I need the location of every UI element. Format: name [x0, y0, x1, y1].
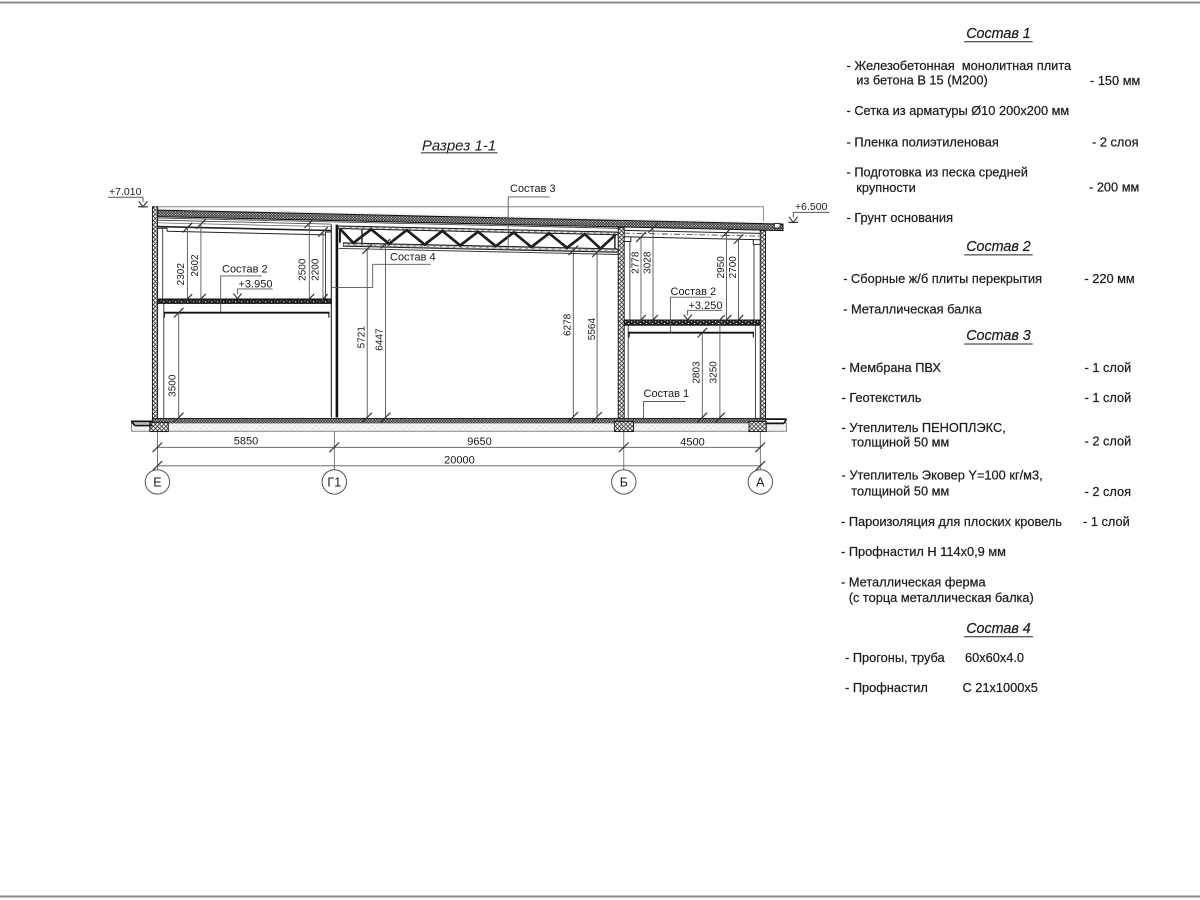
svg-text:2778: 2778 — [631, 251, 642, 274]
svg-text:+7.010: +7.010 — [109, 186, 142, 198]
svg-text:Г1: Г1 — [327, 476, 341, 490]
svg-text:20000: 20000 — [444, 455, 475, 467]
svg-text:Состав 2: Состав 2 — [966, 239, 1031, 255]
svg-text:- 150 мм: - 150 мм — [1090, 73, 1140, 88]
svg-text:- Грунт основания: - Грунт основания — [847, 210, 954, 225]
svg-text:- Утеплитель ПЕНОПЛЭКС,: - Утеплитель ПЕНОПЛЭКС, — [842, 420, 1006, 435]
svg-text:2302: 2302 — [176, 263, 187, 286]
svg-text:- 1 слой: - 1 слой — [1085, 390, 1132, 405]
svg-text:Е: Е — [153, 476, 161, 490]
svg-text:из бетона В 15 (М200): из бетона В 15 (М200) — [856, 72, 987, 87]
svg-text:6278: 6278 — [562, 313, 573, 336]
svg-text:- 1 слой: - 1 слой — [1083, 514, 1130, 529]
svg-text:- Подготовка из песка средней: - Подготовка из песка средней — [847, 165, 1028, 180]
svg-text:3250: 3250 — [708, 361, 719, 384]
svg-text:Состав 1: Состав 1 — [644, 388, 690, 400]
svg-text:- Утеплитель Эковер Y=100 кг/м: - Утеплитель Эковер Y=100 кг/м3, — [842, 467, 1043, 482]
svg-text:2500: 2500 — [298, 258, 309, 281]
svg-text:(с торца металлическая балка): (с торца металлическая балка) — [849, 590, 1034, 605]
svg-text:Состав 2: Состав 2 — [671, 286, 717, 298]
svg-text:- 220 мм: - 220 мм — [1084, 271, 1134, 286]
svg-text:2200: 2200 — [310, 258, 321, 281]
svg-text:- Пленка полиэтиленовая: - Пленка полиэтиленовая — [847, 134, 999, 149]
svg-text:- Пароизоляция для плоских кро: - Пароизоляция для плоских кровель — [841, 514, 1062, 529]
svg-text:6447: 6447 — [374, 328, 385, 351]
svg-text:- 2 слоя: - 2 слоя — [1092, 134, 1139, 149]
svg-text:толщиной 50 мм: толщиной 50 мм — [851, 434, 949, 449]
svg-text:Б: Б — [620, 476, 628, 490]
svg-text:Разрез 1-1: Разрез 1-1 — [422, 138, 496, 155]
svg-text:С 21х1000х5: С 21х1000х5 — [963, 680, 1038, 695]
svg-text:Состав 2: Состав 2 — [222, 263, 268, 275]
svg-text:- Геотекстиль: - Геотекстиль — [842, 390, 922, 405]
svg-text:5564: 5564 — [587, 318, 598, 341]
svg-text:2602: 2602 — [190, 254, 201, 277]
svg-text:Состав 1: Состав 1 — [966, 26, 1031, 42]
svg-text:- Металлическая ферма: - Металлическая ферма — [841, 574, 986, 589]
svg-text:2950: 2950 — [716, 256, 727, 279]
svg-text:Состав 3: Состав 3 — [510, 183, 556, 195]
svg-text:3500: 3500 — [167, 374, 178, 397]
svg-text:- Прогоны, труба: - Прогоны, труба — [845, 650, 946, 665]
svg-text:- Сборные ж/б плиты перекрытия: - Сборные ж/б плиты перекрытия — [843, 271, 1042, 286]
svg-text:+6.500: +6.500 — [795, 201, 828, 213]
svg-text:Состав 4: Состав 4 — [390, 251, 436, 263]
svg-text:- Сетка из арматуры Ø10 200х20: - Сетка из арматуры Ø10 200х200 мм — [847, 103, 1070, 118]
svg-text:Состав 3: Состав 3 — [966, 328, 1031, 344]
svg-text:Состав 4: Состав 4 — [966, 621, 1031, 637]
svg-text:2700: 2700 — [728, 256, 739, 279]
svg-text:5721: 5721 — [356, 326, 367, 349]
svg-text:4500: 4500 — [680, 436, 704, 448]
svg-text:- 2 слой: - 2 слой — [1085, 434, 1132, 449]
svg-text:- 200 мм: - 200 мм — [1089, 179, 1139, 194]
svg-text:А: А — [756, 476, 765, 490]
svg-text:2803: 2803 — [691, 361, 702, 384]
svg-text:3028: 3028 — [643, 251, 654, 274]
svg-text:крупности: крупности — [856, 180, 916, 195]
svg-text:5850: 5850 — [234, 436, 258, 448]
svg-text:9650: 9650 — [467, 436, 491, 448]
svg-text:- Профнастил: - Профнастил — [845, 680, 928, 695]
svg-text:- 2 слоя: - 2 слоя — [1085, 484, 1132, 499]
svg-text:- 1 слой: - 1 слой — [1085, 360, 1132, 375]
svg-text:толщиной 50 мм: толщиной 50 мм — [851, 483, 949, 498]
svg-text:- Профнастил Н 114х0,9 мм: - Профнастил Н 114х0,9 мм — [841, 544, 1006, 559]
svg-text:- Мембрана ПВХ: - Мембрана ПВХ — [842, 360, 942, 375]
svg-text:- Железобетонная монолитная п: - Железобетонная монолитная плита — [847, 58, 1073, 73]
svg-text:- Металлическая балка: - Металлическая балка — [843, 301, 982, 316]
svg-text:60х60х4.0: 60х60х4.0 — [965, 650, 1024, 665]
